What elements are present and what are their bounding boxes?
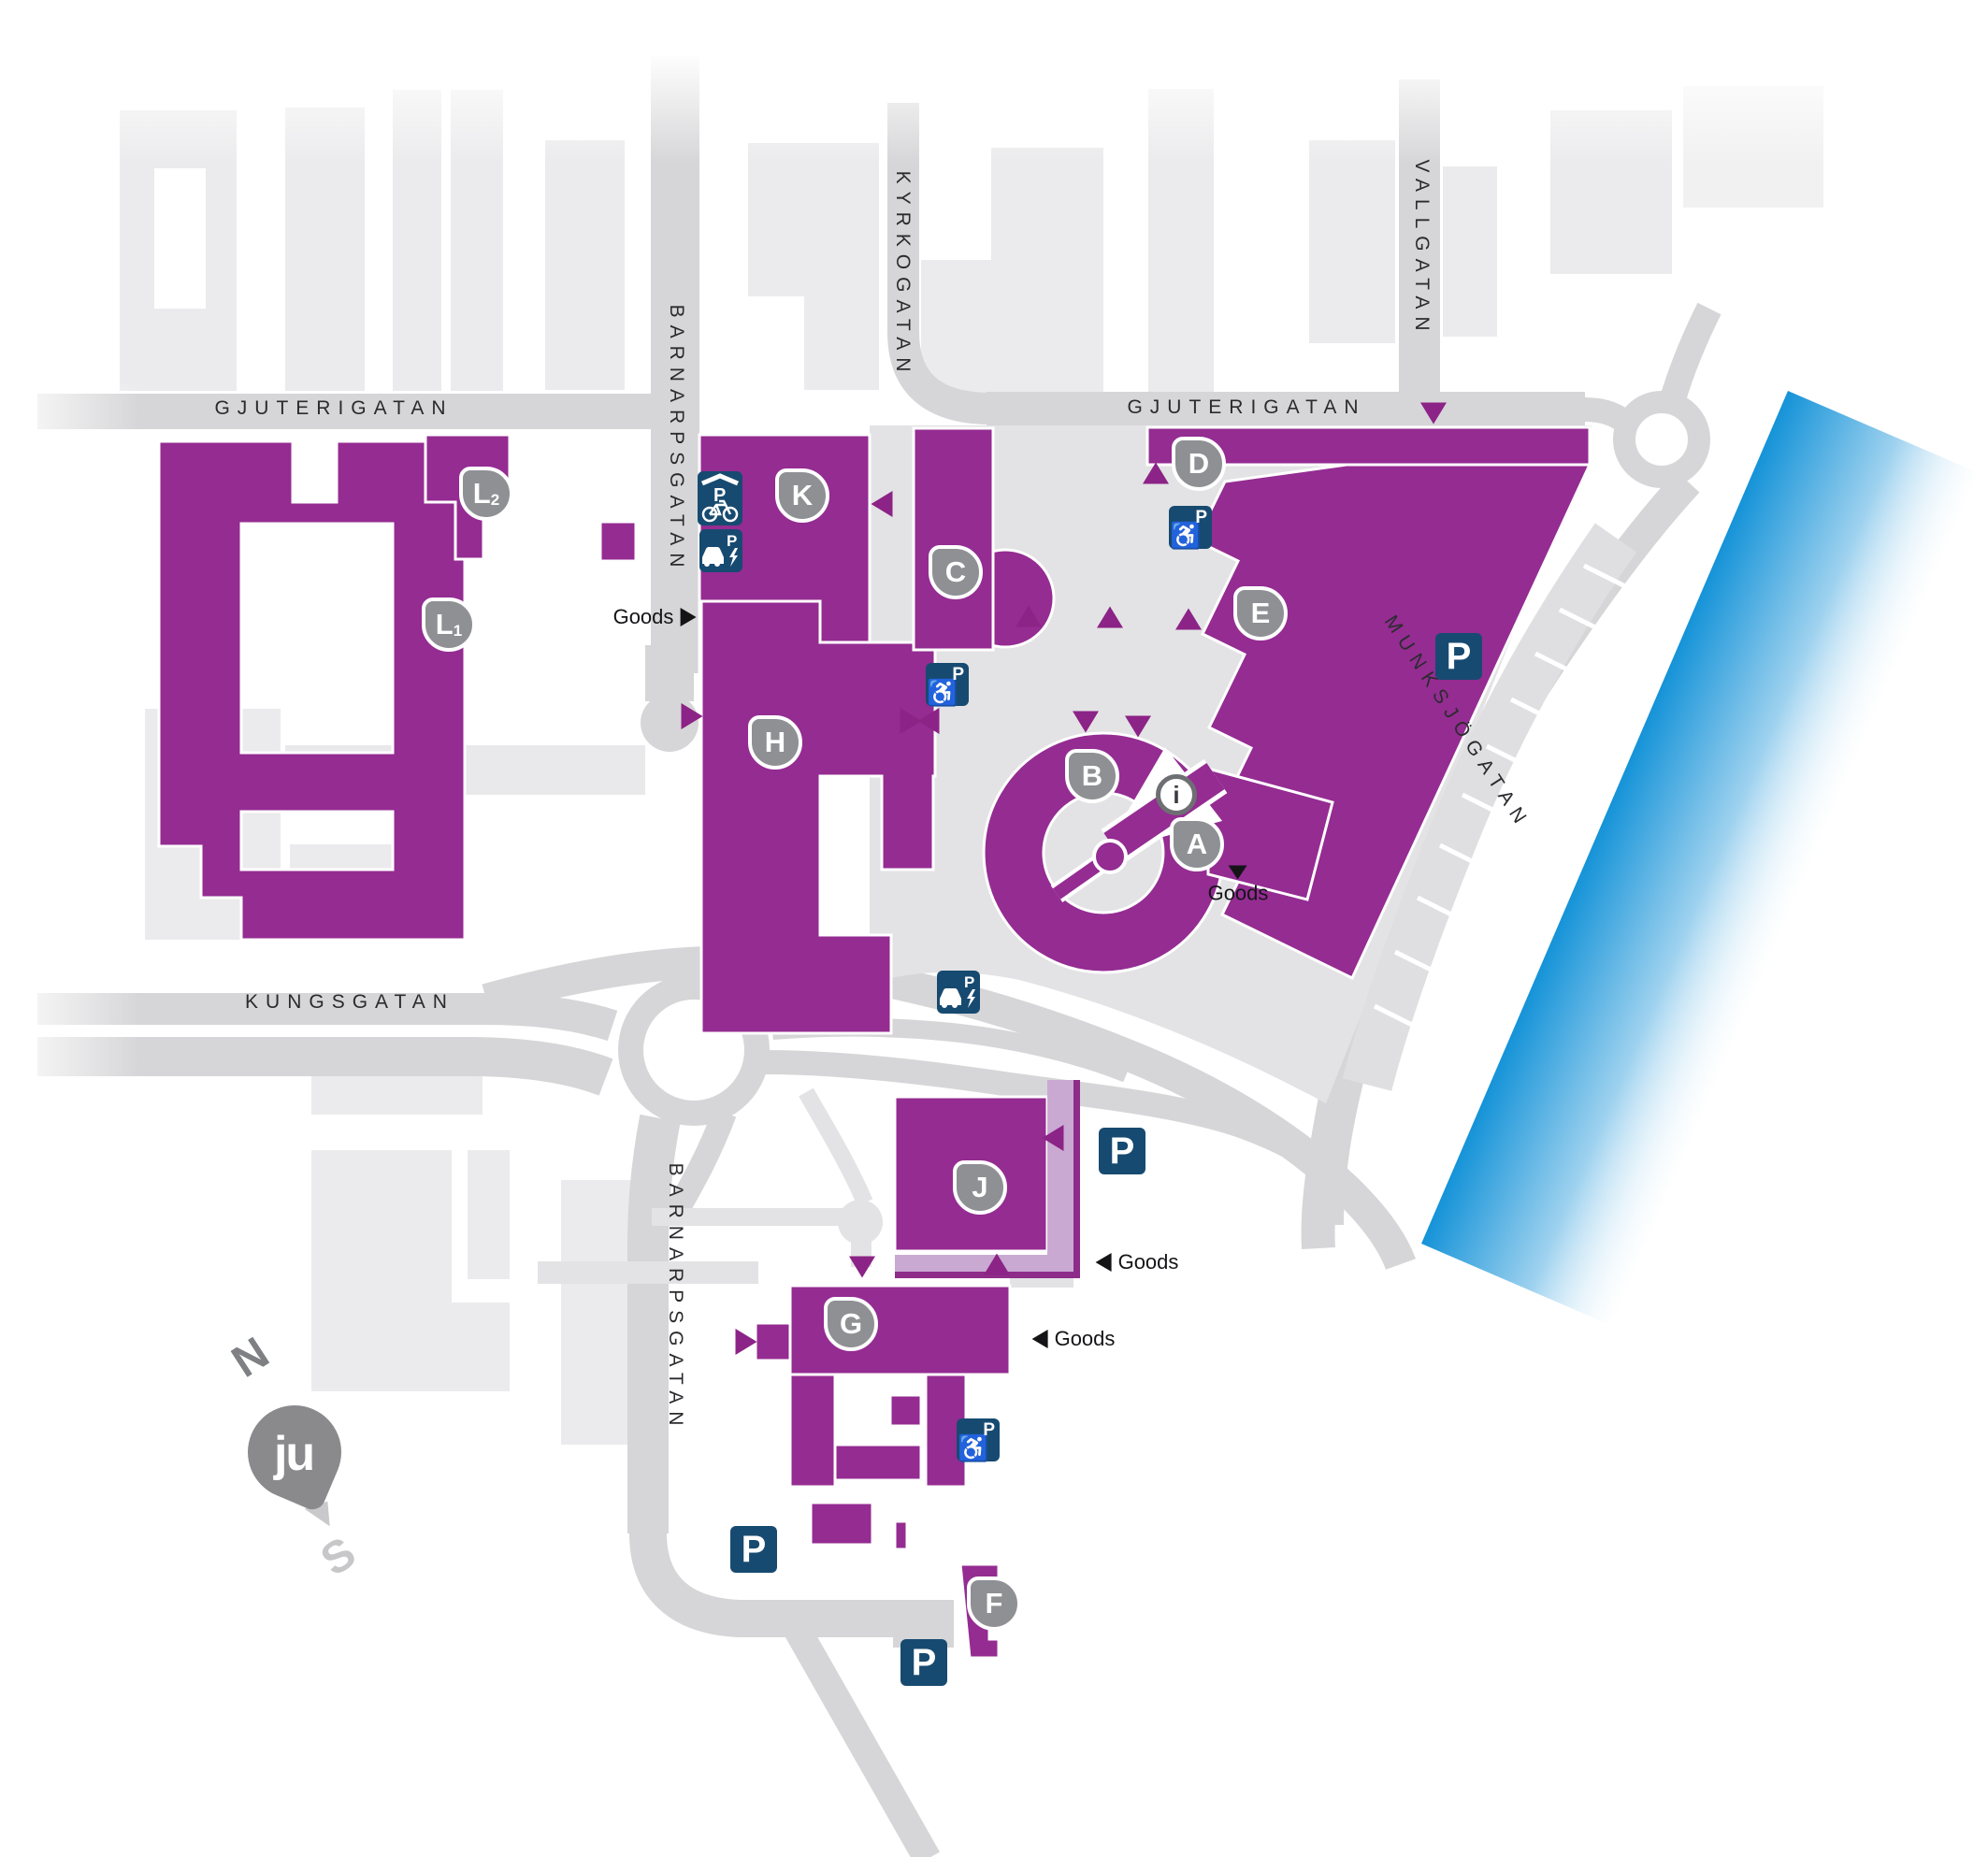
left-fade-2 [0, 982, 140, 1085]
left-fade-1 [0, 383, 140, 439]
map-canvas [0, 0, 1988, 1857]
ju-logo-text: ju [274, 1426, 313, 1482]
campus-map: GJUTERIGATANGJUTERIGATANBARNARPSGATANKYR… [0, 0, 1988, 1857]
top-fade [0, 51, 1988, 164]
roundabout-ne-center [1641, 419, 1682, 460]
